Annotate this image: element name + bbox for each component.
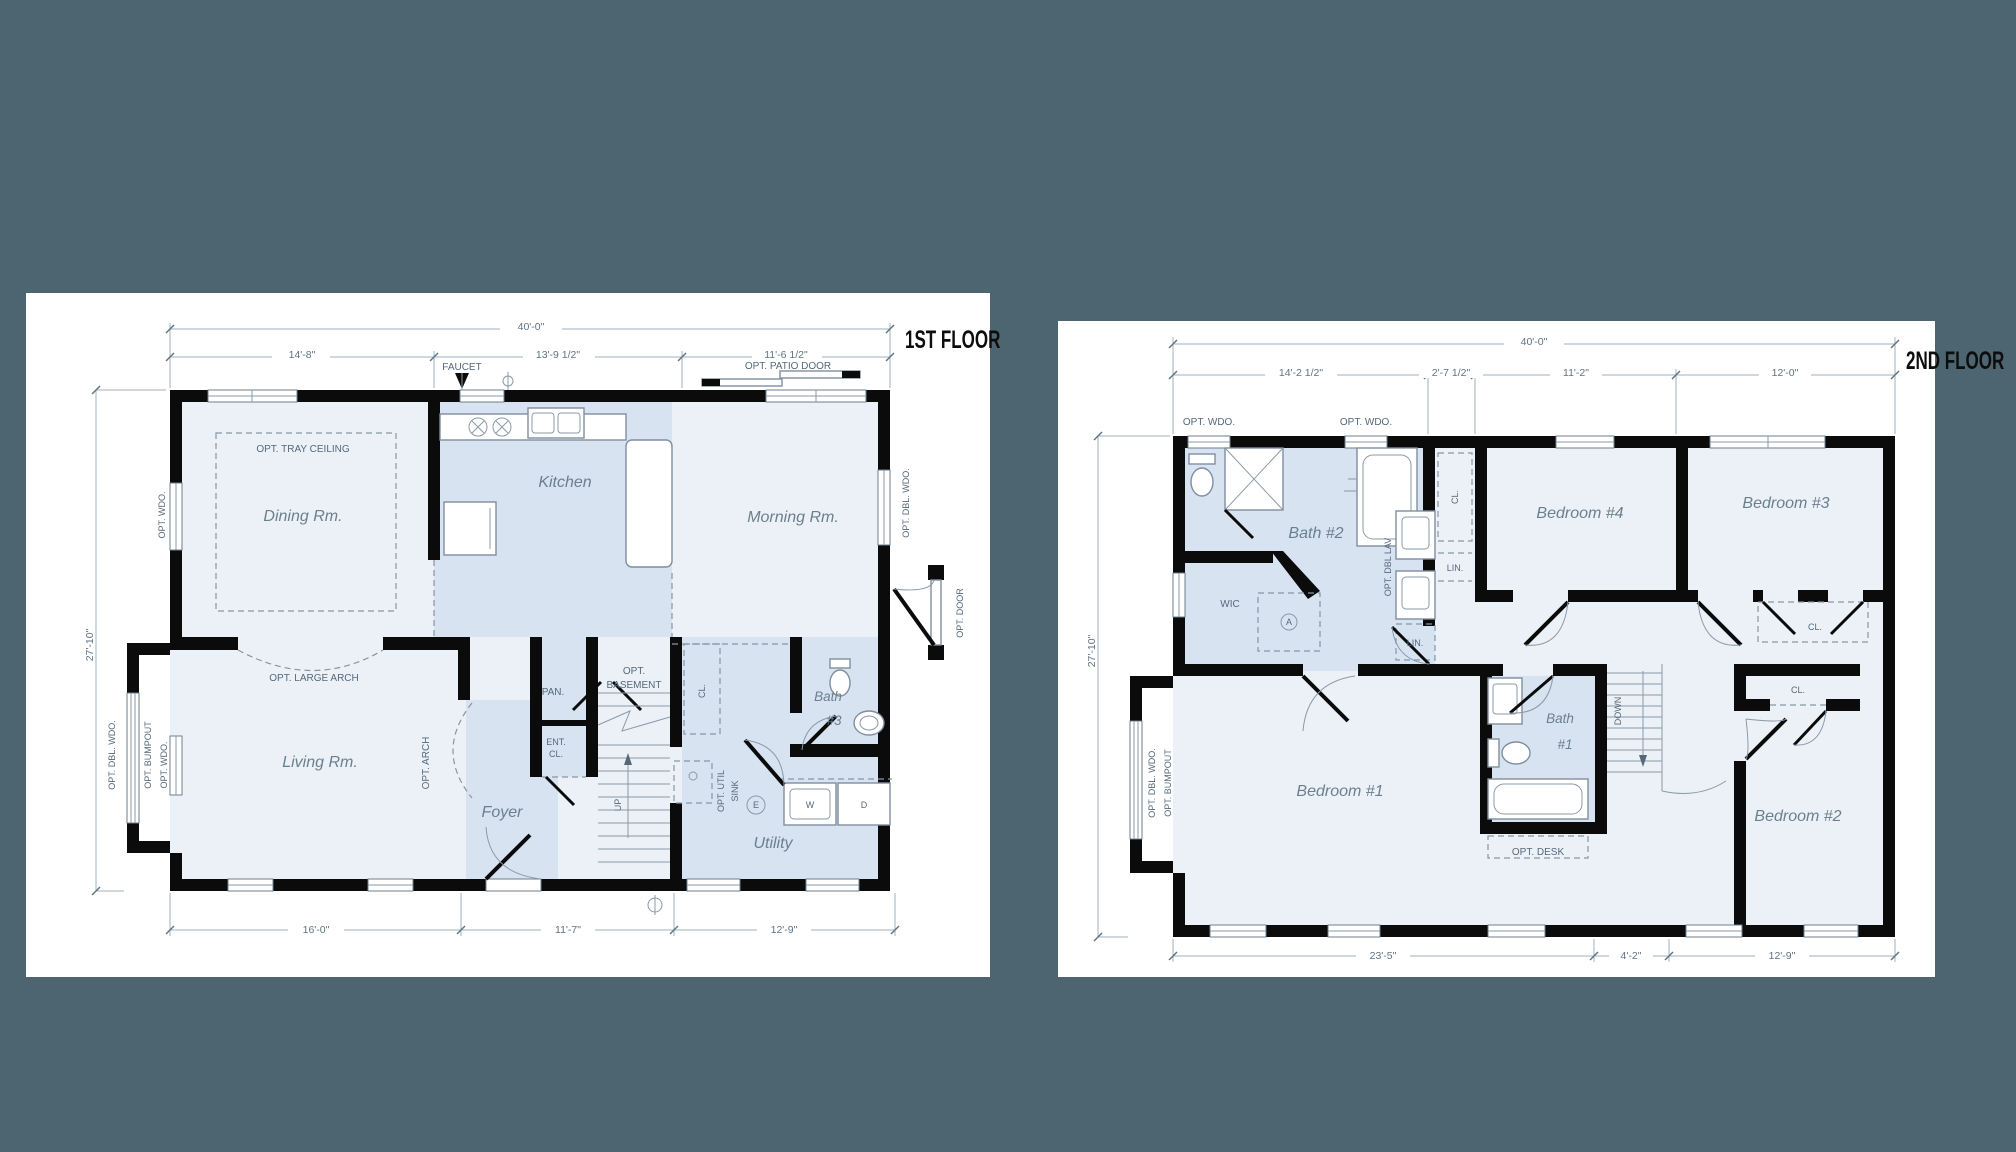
f1-washer-label: W (806, 800, 815, 810)
floor2-plan-drawing: 40'-0" 14'-2 1/2" 2'-7 1/2" 11'-2" 12'-0… (1058, 321, 1935, 977)
floor2-sheet: 40'-0" 14'-2 1/2" 2'-7 1/2" 11'-2" 12'-0… (1058, 321, 1935, 977)
f1-opt-wdo-label-dining: OPT. WDO. (157, 492, 167, 539)
f2-bath2-label: Bath #2 (1288, 525, 1343, 542)
f2-lin2-label: LIN. (1407, 638, 1424, 648)
floor1-title: 1ST FLOOR (905, 326, 1000, 355)
f1-opt-door-label: OPT. DOOR (955, 588, 965, 638)
f1-living-label: Living Rm. (282, 754, 358, 771)
f2-dim-top2: 2'-7 1/2" (1432, 367, 1471, 379)
f2-opt-wdo2-label: OPT. WDO. (1340, 417, 1392, 428)
f2-dim-bot2: 4'-2" (1621, 950, 1642, 962)
f2-down-label: DOWN (1613, 697, 1623, 726)
floorplan-sheet: { "colors": { "background": "#4c6570", "… (0, 0, 2016, 1152)
f2-bed4-label: Bedroom #4 (1536, 505, 1623, 522)
f2-cl-bed2-label: CL. (1791, 685, 1805, 695)
f1-bath-label: Bath (814, 689, 842, 704)
f1-dim-bot3: 12'-9" (771, 924, 798, 936)
f1-ent-label: ENT. (546, 737, 566, 747)
f2-dim-top3: 11'-2" (1563, 367, 1589, 379)
f2-bath1-label: Bath (1546, 711, 1574, 726)
f1-ent-cl-label: CL. (549, 749, 563, 759)
f1-opt-dbl-wdo-right-label: OPT. DBL. WDO. (901, 468, 911, 538)
f2-cl-strip-label: CL. (1450, 490, 1460, 504)
floor1-sheet: 40'-0" 14'-8" 13'-9 1/2" 11'-6 1/2" 27'-… (26, 293, 990, 977)
f2-opt-dbl-wdo-label: OPT. DBL. WDO. (1147, 748, 1157, 818)
f1-dim-overall: 40'-0" (518, 321, 545, 333)
f2-opt-desk-label: OPT. DESK (1512, 847, 1565, 858)
floor1-plan-drawing: 40'-0" 14'-8" 13'-9 1/2" 11'-6 1/2" 27'-… (26, 293, 990, 977)
f2-lin1-label: LIN. (1447, 563, 1464, 573)
f2-bed2-label: Bedroom #2 (1754, 808, 1841, 825)
f1-cl-label: CL. (697, 684, 707, 698)
f1-opt-dbl-wdo-label: OPT. DBL. WDO. (107, 720, 117, 790)
f2-bath1-no-label: #1 (1557, 737, 1572, 752)
f1-morning-label: Morning Rm. (747, 509, 839, 526)
f1-opt-arch-label: OPT. ARCH (421, 737, 432, 790)
f1-utility-label: Utility (753, 835, 793, 852)
f1-dim-bot1: 16'-0" (303, 924, 330, 936)
floor2-title: 2ND FLOOR (1906, 347, 2004, 376)
f2-bed3-label: Bedroom #3 (1742, 495, 1829, 512)
f2-opt-dbl-lav-label: OPT. DBL LAV (1383, 538, 1393, 597)
f1-util-sink-label: SINK (730, 780, 740, 801)
f1-dim-top1: 14'-8" (289, 349, 316, 361)
f1-tray-label: OPT. TRAY CEILING (256, 444, 350, 455)
f1-dryer-label: D (861, 800, 868, 810)
f2-dim-top4: 12'-0" (1772, 367, 1799, 379)
f1-electric-label: E (753, 800, 759, 810)
f2-dim-overall: 40'-0" (1521, 336, 1548, 348)
f2-bed1-label: Bedroom #1 (1296, 783, 1383, 800)
f2-cl-bed3-label: CL. (1808, 622, 1822, 632)
f1-large-arch-label: OPT. LARGE ARCH (269, 673, 358, 684)
f2-opt-bumpout-label: OPT. BUMPOUT (1163, 749, 1173, 817)
f1-dim-bot2: 11'-7" (555, 924, 581, 936)
f2-dim-top1: 14'-2 1/2" (1279, 367, 1324, 379)
f1-bath-no-label: #3 (826, 713, 842, 728)
f2-opt-wdo1-label: OPT. WDO. (1183, 417, 1235, 428)
f1-pan-label: PAN. (542, 687, 565, 698)
f1-foyer-label: Foyer (482, 804, 524, 821)
f1-dining-label: Dining Rm. (263, 508, 342, 525)
f2-dim-bot3: 12'-9" (1769, 950, 1796, 962)
f1-kitchen-label: Kitchen (538, 474, 591, 491)
f1-up-label: UP (613, 799, 623, 812)
f1-dim-top2: 13'-9 1/2" (536, 349, 581, 361)
f1-dim-left: 27'-10" (84, 628, 96, 661)
f1-opt-label: OPT. (623, 666, 645, 677)
f1-patio-label: OPT. PATIO DOOR (745, 361, 831, 372)
f1-faucet-label: FAUCET (442, 362, 481, 373)
f1-dim-top3: 11'-6 1/2" (764, 349, 808, 361)
f1-opt-wdo-label-living: OPT. WDO. (159, 742, 169, 789)
f1-basement-label: BASEMENT (606, 680, 661, 691)
f2-wic-label: WIC (1220, 599, 1239, 610)
f2-attic-label: A (1286, 617, 1292, 627)
f2-dim-bot1: 23'-5" (1370, 950, 1397, 962)
f1-opt-bumpout-label: OPT. BUMPOUT (143, 721, 153, 789)
f2-dim-left: 27'-10" (1086, 634, 1098, 667)
f1-opt-util-label: OPT. UTIL (716, 770, 726, 812)
